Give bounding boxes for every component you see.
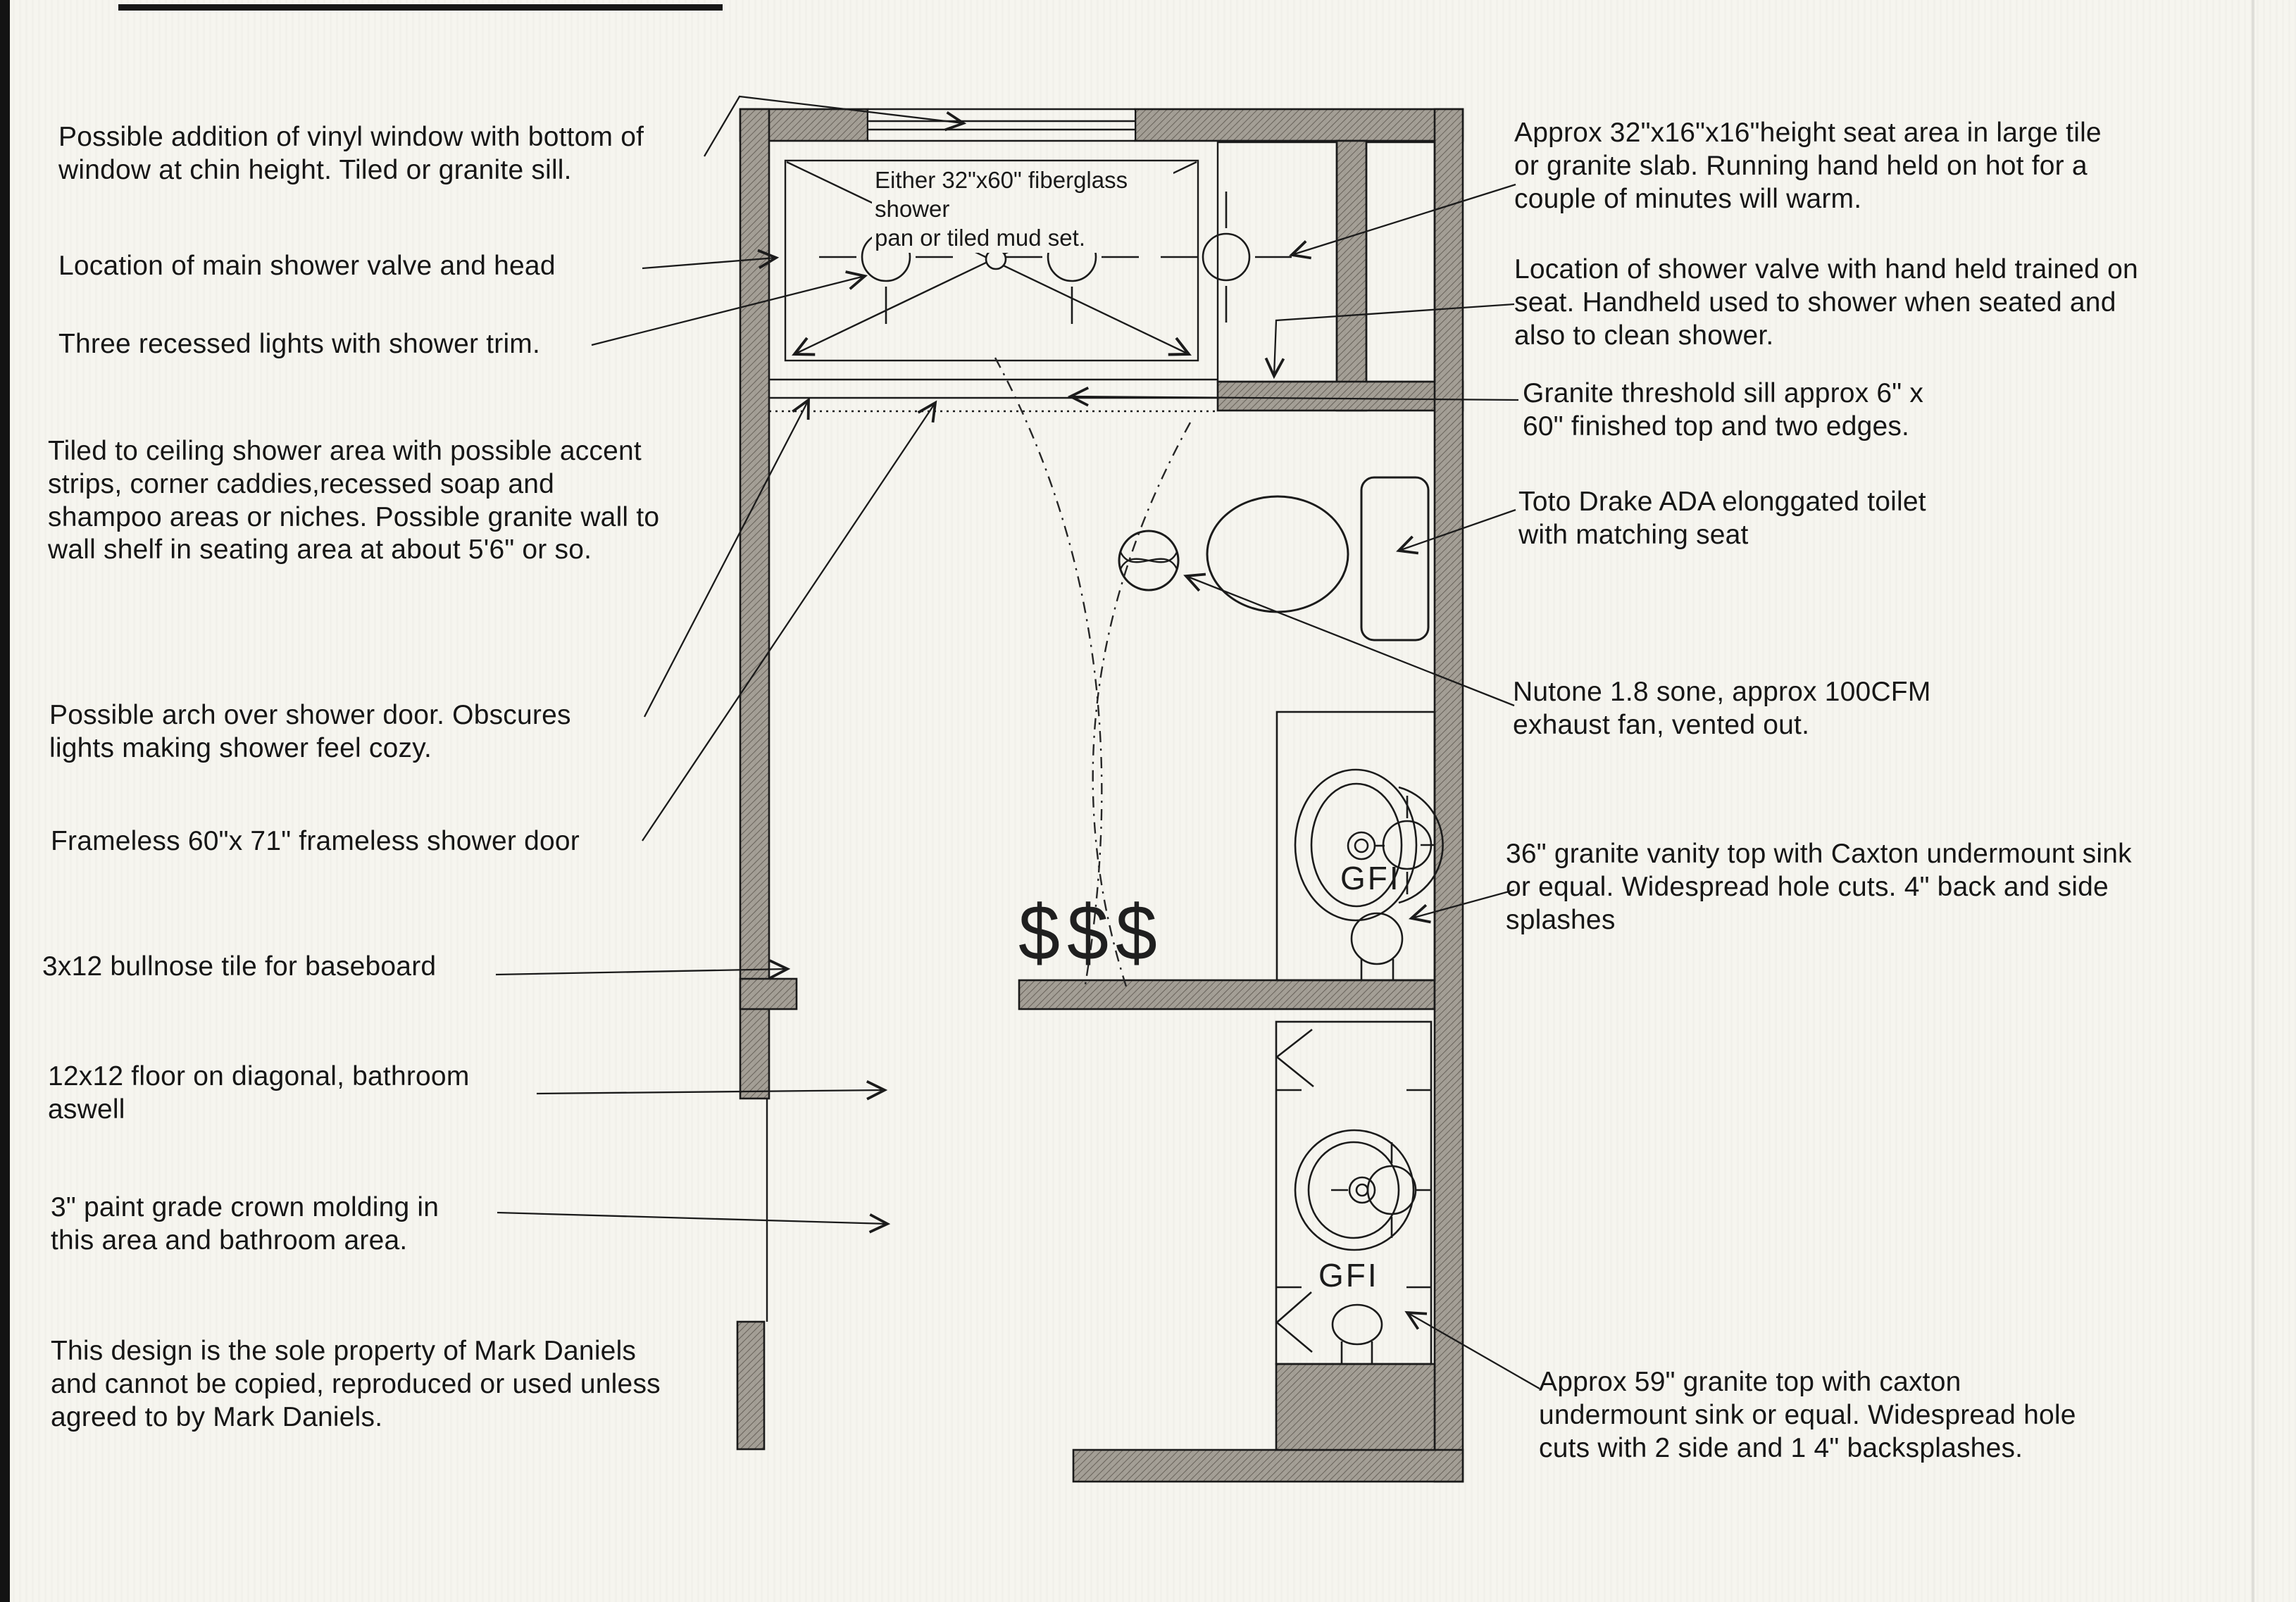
seat-area: [1218, 142, 1337, 382]
wall-niche: [1366, 142, 1435, 382]
left-wall-stub: [737, 1322, 764, 1449]
left-wall: [740, 109, 769, 1099]
note-crown: 3" paint grade crown molding in this are…: [51, 1191, 516, 1258]
scan-edge-left: [0, 0, 10, 1602]
note-fan: Nutone 1.8 sone, approx 100CFM exhaust f…: [1513, 676, 2006, 742]
note-lights: Three recessed lights with shower trim.: [58, 328, 636, 361]
note-threshold: Granite threshold sill approx 6" x 60" f…: [1523, 377, 2044, 444]
note-property: This design is the sole property of Mark…: [51, 1335, 727, 1434]
window-opening: [868, 109, 1135, 141]
scanned-floor-plan-page: Either 32"x60" fiberglass shower pan or …: [0, 0, 2296, 1602]
break-mark-bottom: [1277, 1292, 1312, 1352]
note-frameless: Frameless 60"x 71" frameless shower door: [51, 825, 685, 858]
note-arch: Possible arch over shower door. Obscures…: [49, 699, 669, 765]
interior-wall-right: [1019, 980, 1435, 1009]
bottom-wall: [1073, 1450, 1463, 1482]
leader-floor: [537, 1090, 885, 1094]
seat-wall-vertical: [1337, 141, 1366, 411]
break-mark-top: [1277, 1030, 1314, 1087]
faucet-lower-icon: [1349, 1177, 1375, 1203]
leader-seat: [1292, 184, 1516, 255]
scan-streak-top: [118, 4, 723, 11]
sink-lower-outer: [1295, 1130, 1414, 1250]
faucet-upper-icon: [1348, 832, 1375, 859]
note-toilet: Toto Drake ADA elonggated toilet with ma…: [1518, 486, 2026, 552]
note-tiled: Tiled to ceiling shower area with possib…: [48, 435, 738, 567]
sink-lower-inner: [1309, 1142, 1399, 1238]
gfi-label-lower: GFI: [1318, 1256, 1379, 1294]
leader-fan: [1186, 576, 1514, 706]
note-bullnose: 3x12 bullnose tile for baseboard: [42, 951, 521, 984]
under-vanity-wall-pad: [1276, 1364, 1435, 1450]
note-vanity59: Approx 59" granite top with caxton under…: [1539, 1366, 2145, 1465]
top-wall-right: [1135, 109, 1463, 141]
dollar-signs: $$$: [1018, 889, 1164, 978]
toilet-group: [1119, 477, 1428, 640]
leader-crown: [497, 1213, 887, 1224]
drain-lower: [1333, 1305, 1382, 1344]
threshold-wall-band: [1218, 382, 1463, 411]
toilet-bowl: [1207, 496, 1348, 612]
leader-shower-valve: [1274, 304, 1514, 376]
drain-upper: [1352, 913, 1402, 964]
interior-wall-left: [740, 979, 797, 1009]
note-shower-valve: Location of shower valve with hand held …: [1514, 254, 2226, 352]
gfi-label-upper: GFI: [1340, 859, 1401, 897]
toilet-tank: [1361, 477, 1428, 640]
note-valve: Location of main shower valve and head: [58, 250, 664, 283]
vanity-upper-group: [1277, 712, 1443, 980]
right-wall: [1435, 109, 1463, 1482]
note-floor: 12x12 floor on diagonal, bathroom aswell: [48, 1060, 555, 1127]
note-window: Possible addition of vinyl window with b…: [58, 121, 735, 187]
note-vanity36: 36" granite vanity top with Caxton under…: [1506, 838, 2217, 937]
note-seat: Approx 32"x16"x16"height seat area in la…: [1514, 117, 2204, 215]
scan-crease-right: [2252, 0, 2254, 1602]
shower-pan-label: Either 32"x60" fiberglass shower pan or …: [872, 166, 1173, 253]
shower-light-icon-3: [1203, 234, 1249, 280]
